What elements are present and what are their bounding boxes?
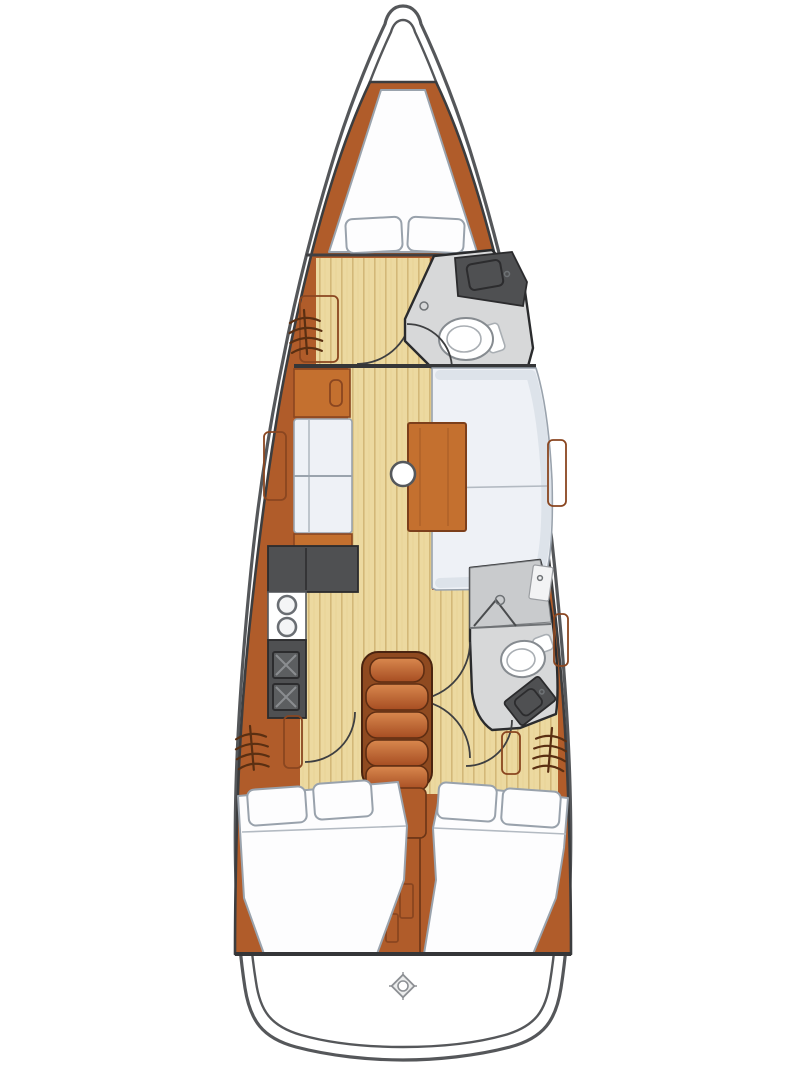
toilet-seat: [447, 326, 481, 352]
galley-counter-top: [268, 546, 358, 592]
yacht-floor-plan: [0, 0, 810, 1080]
mast-post: [391, 462, 415, 486]
step-5: [370, 658, 424, 682]
starboard-pillow-inboard: [437, 782, 497, 822]
aft-head-sink-counter: [529, 565, 554, 601]
port-pillow-inboard: [313, 780, 373, 820]
salon-port-lower-cabinet: [294, 534, 352, 547]
settee-aft-floor: [432, 590, 470, 670]
v-berth-pillow-port: [345, 217, 403, 254]
floor-plan-svg: [0, 0, 810, 1080]
aft-cabin-port: [238, 780, 407, 954]
stove-burner-forward: [278, 596, 296, 614]
starboard-pillow-outboard: [501, 788, 561, 828]
galley-sink-aft: [273, 684, 299, 710]
step-4: [366, 684, 428, 710]
galley-sink-forward: [273, 652, 299, 678]
salon-table: [408, 423, 466, 531]
compass-circle: [398, 981, 408, 991]
stove-burner-aft: [278, 618, 296, 636]
v-berth-pillow-starboard: [407, 217, 465, 254]
step-3: [366, 712, 428, 738]
port-pillow-outboard: [247, 786, 307, 826]
step-2: [366, 740, 428, 766]
